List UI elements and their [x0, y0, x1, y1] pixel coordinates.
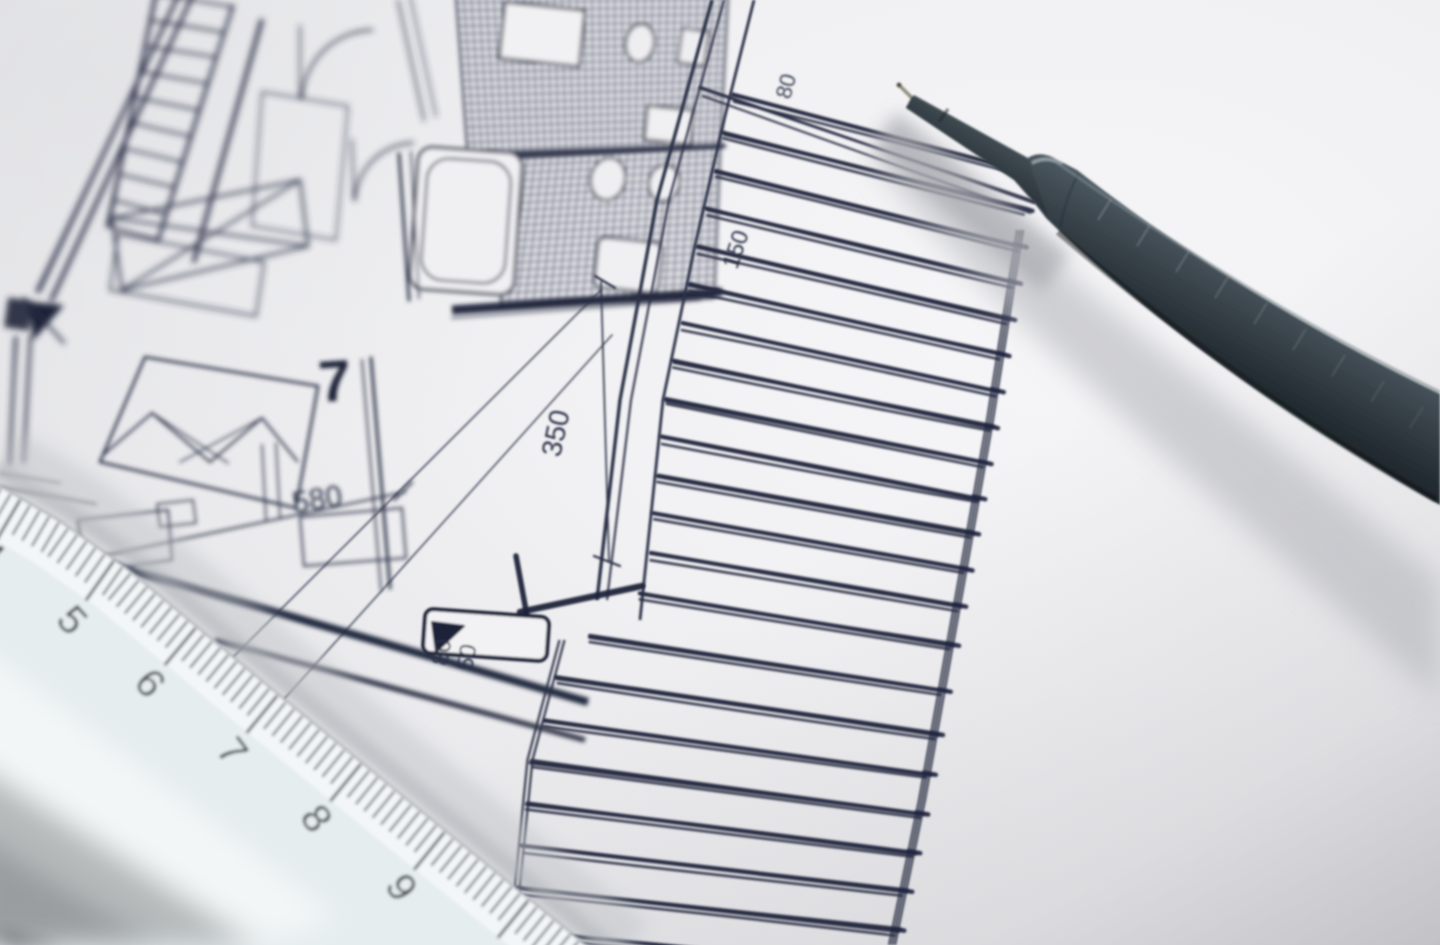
svg-text:7: 7 — [316, 348, 353, 415]
svg-text:50: 50 — [451, 642, 481, 672]
